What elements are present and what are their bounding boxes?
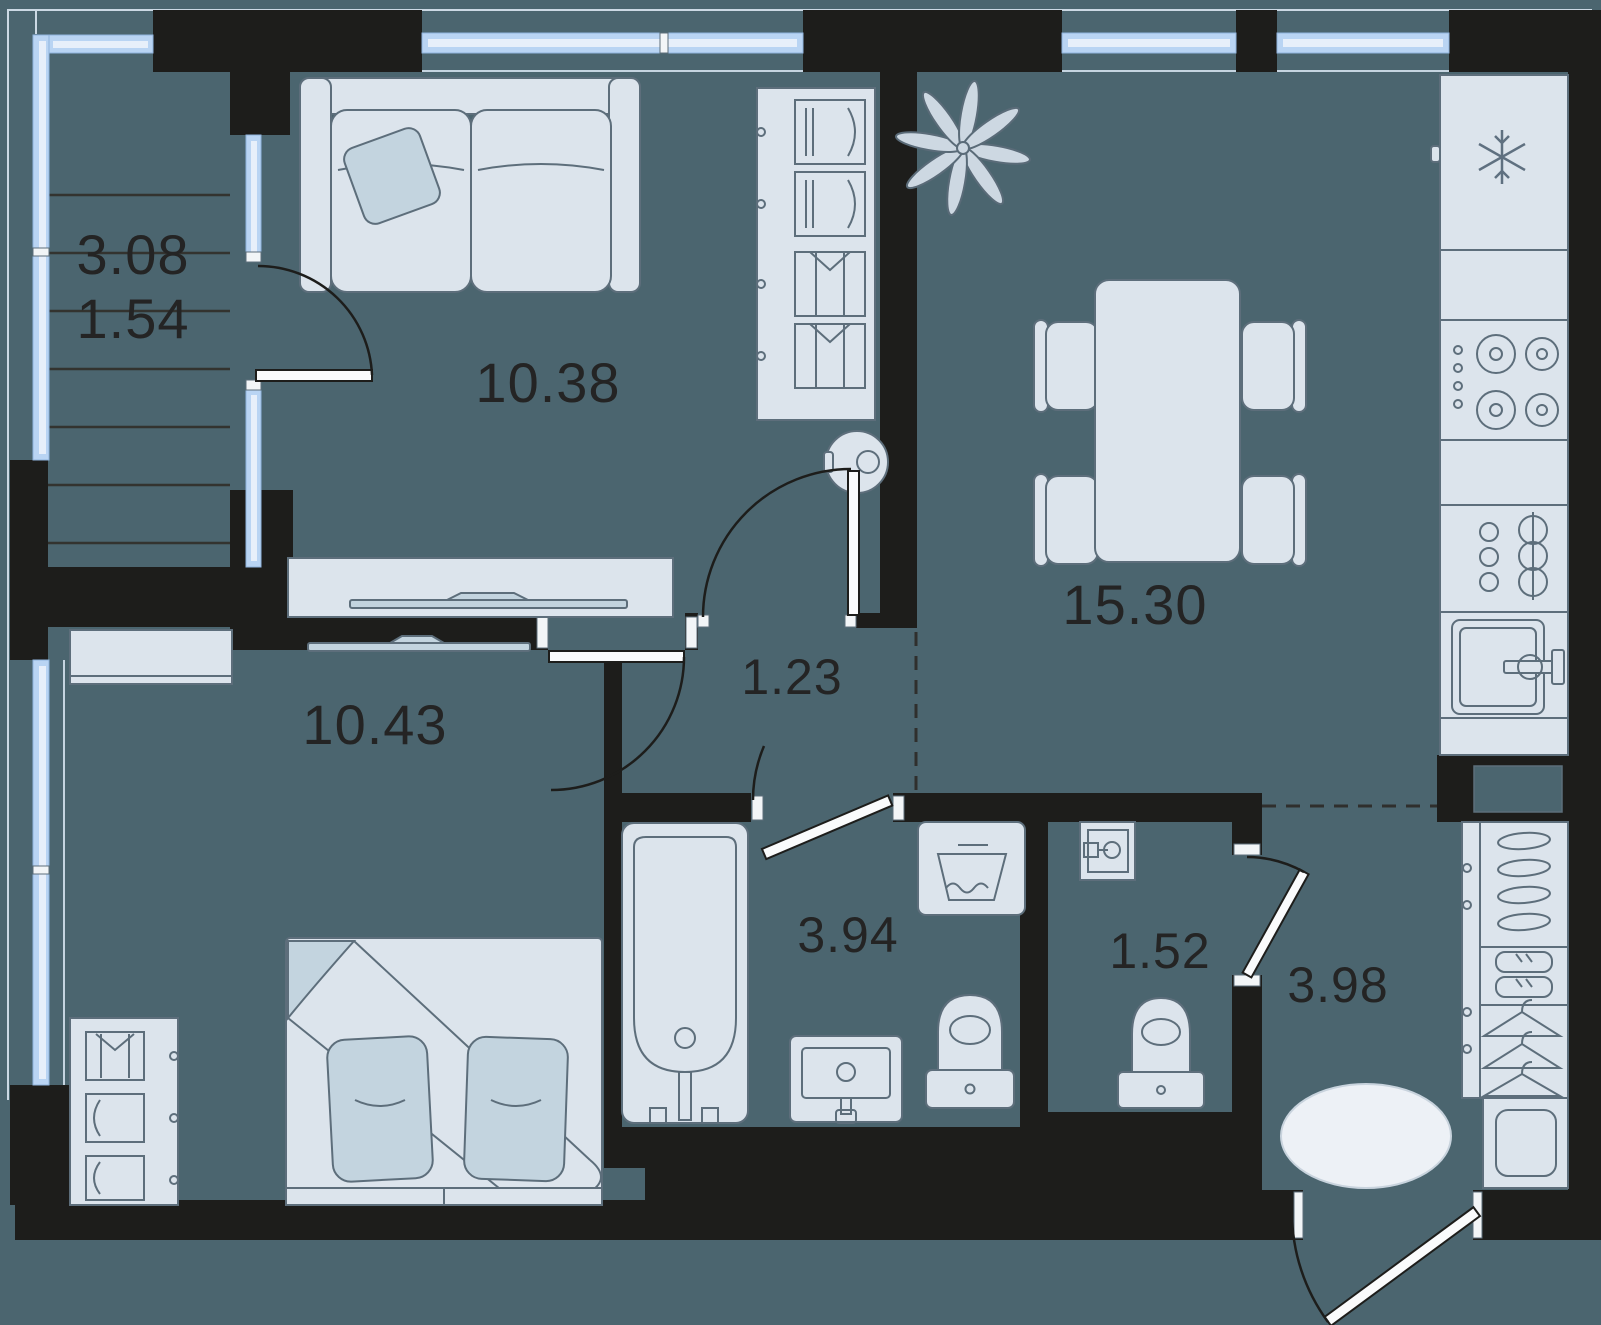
chair bbox=[1034, 320, 1098, 412]
bed bbox=[286, 938, 602, 1205]
wardrobe bbox=[1462, 822, 1568, 1098]
rug bbox=[1281, 1084, 1451, 1188]
shoe-cabinet bbox=[1483, 1098, 1568, 1188]
vent-shaft bbox=[1474, 766, 1562, 812]
dining-table bbox=[1095, 280, 1240, 562]
hallway-area-label: 1.23 bbox=[741, 649, 842, 705]
window-balcony-left bbox=[33, 35, 49, 460]
floor-plan: 3.08 1.54 10.38 15.30 10.43 1.23 3.94 1.… bbox=[0, 0, 1601, 1325]
balcony-area-label: 3.08 bbox=[77, 223, 190, 286]
kitchen-counter bbox=[1440, 250, 1568, 755]
fridge bbox=[1431, 75, 1568, 250]
tv-console bbox=[288, 558, 673, 617]
bathroom-area-label: 3.94 bbox=[797, 907, 898, 963]
chair bbox=[1242, 474, 1306, 566]
bed-pillow-left bbox=[326, 1035, 433, 1182]
kitchen-area-label: 15.30 bbox=[1062, 573, 1207, 636]
bed-pillow-right bbox=[464, 1036, 569, 1181]
living-room-area-label: 10.38 bbox=[475, 351, 620, 414]
window-balcony-living-lower bbox=[246, 389, 261, 567]
chair bbox=[1242, 320, 1306, 412]
bathroom-sink bbox=[790, 1036, 902, 1123]
washing-machine bbox=[918, 822, 1025, 915]
window-balcony-living-upper bbox=[246, 135, 261, 262]
entrance-hall-area-label: 3.98 bbox=[1287, 957, 1388, 1013]
desk bbox=[70, 630, 232, 684]
wc-sink bbox=[1080, 822, 1135, 880]
bedroom-area-label: 10.43 bbox=[302, 693, 447, 756]
chair bbox=[1034, 474, 1098, 566]
shelving-unit bbox=[757, 88, 875, 420]
wc-area-label: 1.52 bbox=[1109, 923, 1210, 979]
headboard bbox=[286, 1188, 444, 1205]
window-balcony-top bbox=[48, 35, 153, 53]
bathtub bbox=[622, 823, 748, 1123]
balcony-reduced-area-label: 1.54 bbox=[77, 287, 190, 350]
sofa bbox=[300, 78, 640, 292]
dresser bbox=[70, 1018, 178, 1205]
